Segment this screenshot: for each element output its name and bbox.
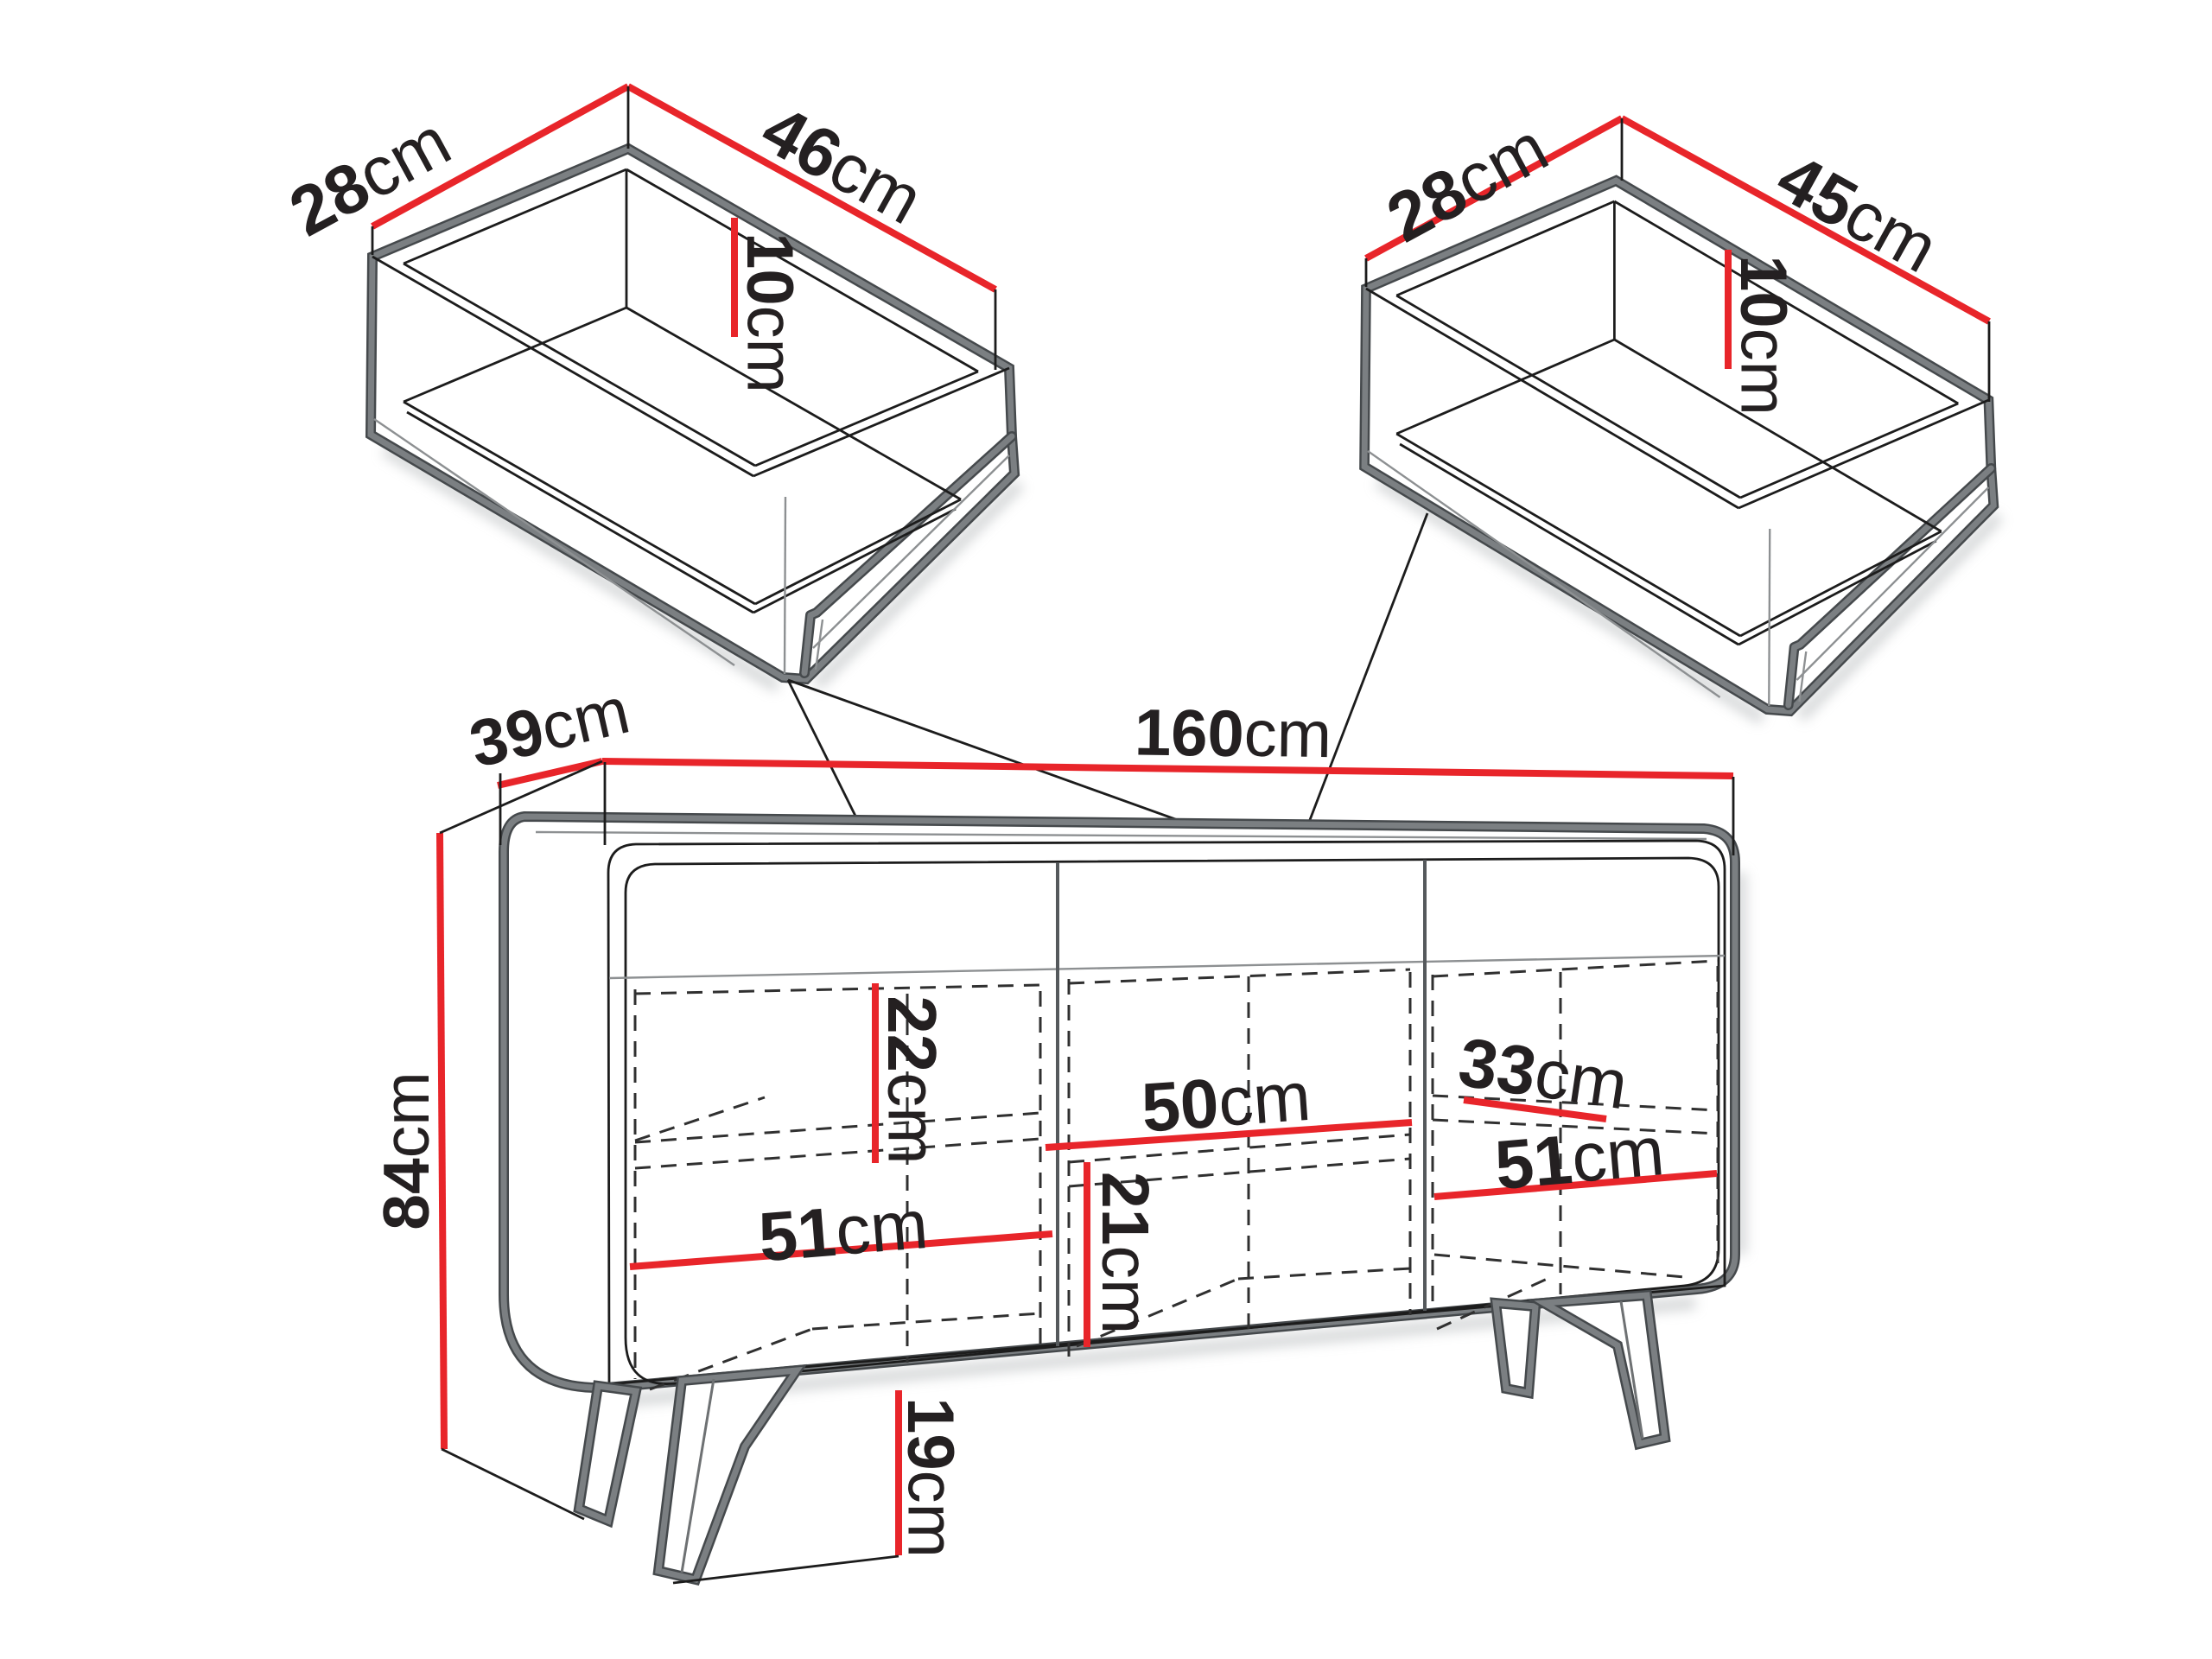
svg-text:51cm: 51cm — [756, 1185, 931, 1275]
svg-text:21cm: 21cm — [1088, 1172, 1162, 1334]
svg-text:50cm: 50cm — [1139, 1058, 1313, 1146]
svg-text:51cm: 51cm — [1492, 1112, 1668, 1204]
svg-text:22cm: 22cm — [874, 995, 951, 1165]
svg-text:160cm: 160cm — [1134, 696, 1332, 772]
svg-text:10cm: 10cm — [734, 232, 807, 393]
svg-text:10cm: 10cm — [1727, 255, 1801, 416]
svg-text:84cm: 84cm — [370, 1071, 442, 1230]
svg-text:19cm: 19cm — [894, 1397, 968, 1558]
